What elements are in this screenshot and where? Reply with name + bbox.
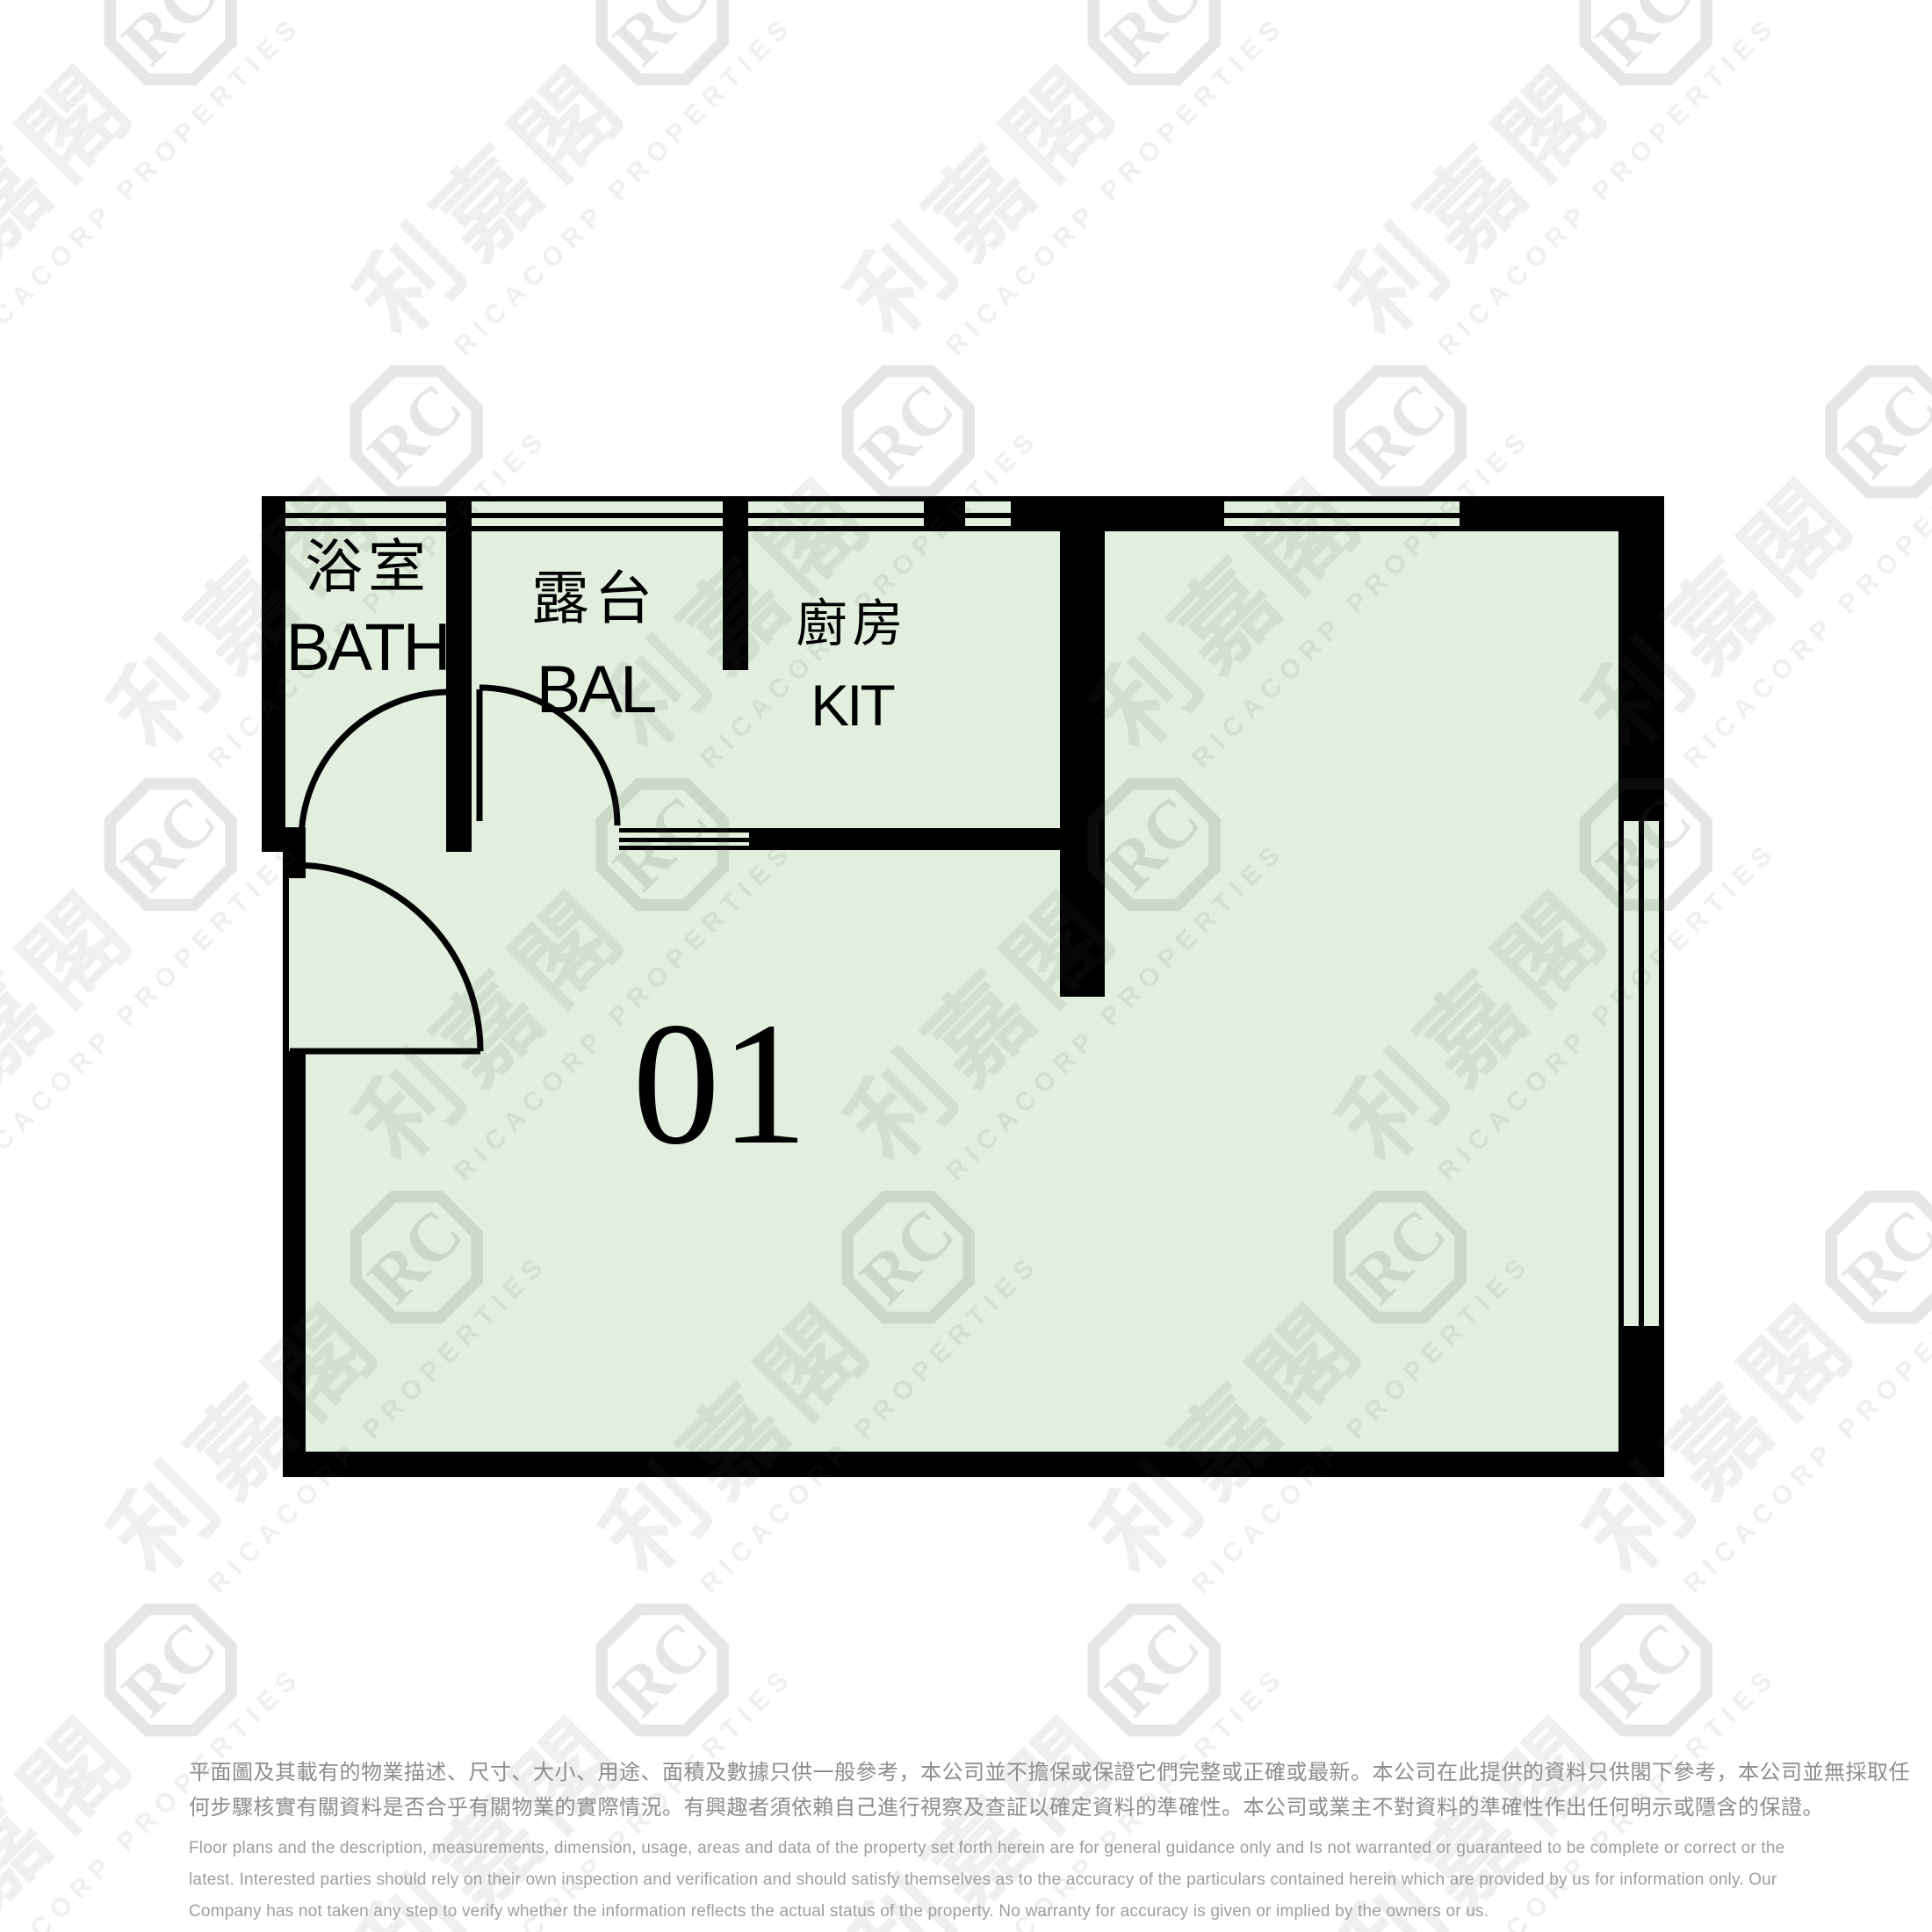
floor-fill [283,496,1664,1452]
balcony-label-en: BAL [525,657,666,724]
disclaimer-zh-line-2: 何步驟核實有關資料是否合乎有關物業的實際情況。有興趣者須依賴自己進行視察及查証以… [189,1790,1761,1820]
disclaimer-zh-line-1: 平面圖及其載有的物業描述、尺寸、大小、用途、面積及數據只供一般參考，本公司並不擔… [189,1755,1761,1785]
disclaimer-en-line-3: Company has not taken any step to verify… [189,1902,1761,1921]
kitchen-label-en: KIT [790,676,913,734]
floor-plan-page: 利嘉閣 RC RICACORP PROPERTIES 利嘉閣 RC RICACO… [0,0,1932,1932]
kitchen-label-zh: 廚房 [789,599,916,650]
unit-number: 01 [619,997,821,1172]
disclaimer-en-line-1: Floor plans and the description, measure… [189,1839,1761,1858]
disclaimer-en-line-2: latest. Interested parties should rely o… [189,1871,1761,1890]
balcony-label-zh: 露台 [520,569,669,627]
floor-plan-drawing [0,0,1932,1932]
balcony-sill-window [619,828,749,850]
bath-label-zh: 浴室 [290,537,446,595]
bath-label-en: BATH [279,615,455,681]
